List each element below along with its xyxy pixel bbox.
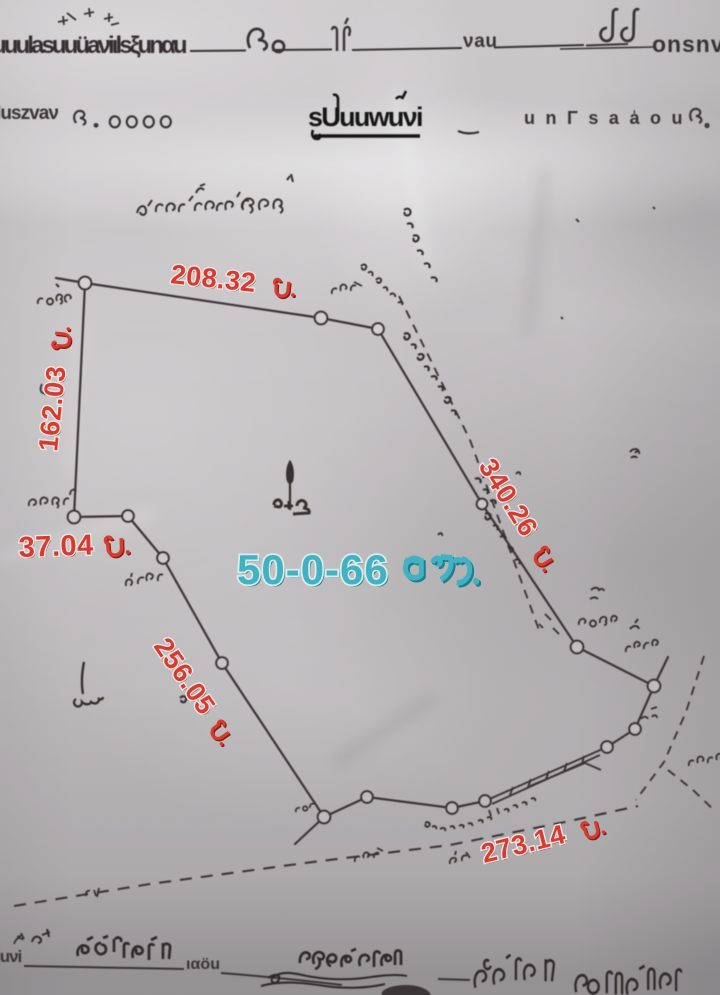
- svg-text:50-0-66: 50-0-66: [237, 546, 389, 593]
- svg-text:uuulasuuüaνiιlsξunαu: uuulasuuüaνiιlsξunαu: [0, 32, 187, 59]
- svg-text:ιαöu: ιαöu: [186, 956, 219, 973]
- svg-text:onsnv: onsnv: [652, 31, 720, 57]
- svg-text:luszvaν: luszvaν: [0, 103, 58, 124]
- svg-text:sUuuwuνi: sUuuwuνi: [308, 102, 422, 132]
- svg-text:37.04: 37.04: [18, 529, 94, 564]
- svg-text:νau: νau: [463, 31, 496, 52]
- svg-text:iuνi: iuνi: [0, 947, 22, 966]
